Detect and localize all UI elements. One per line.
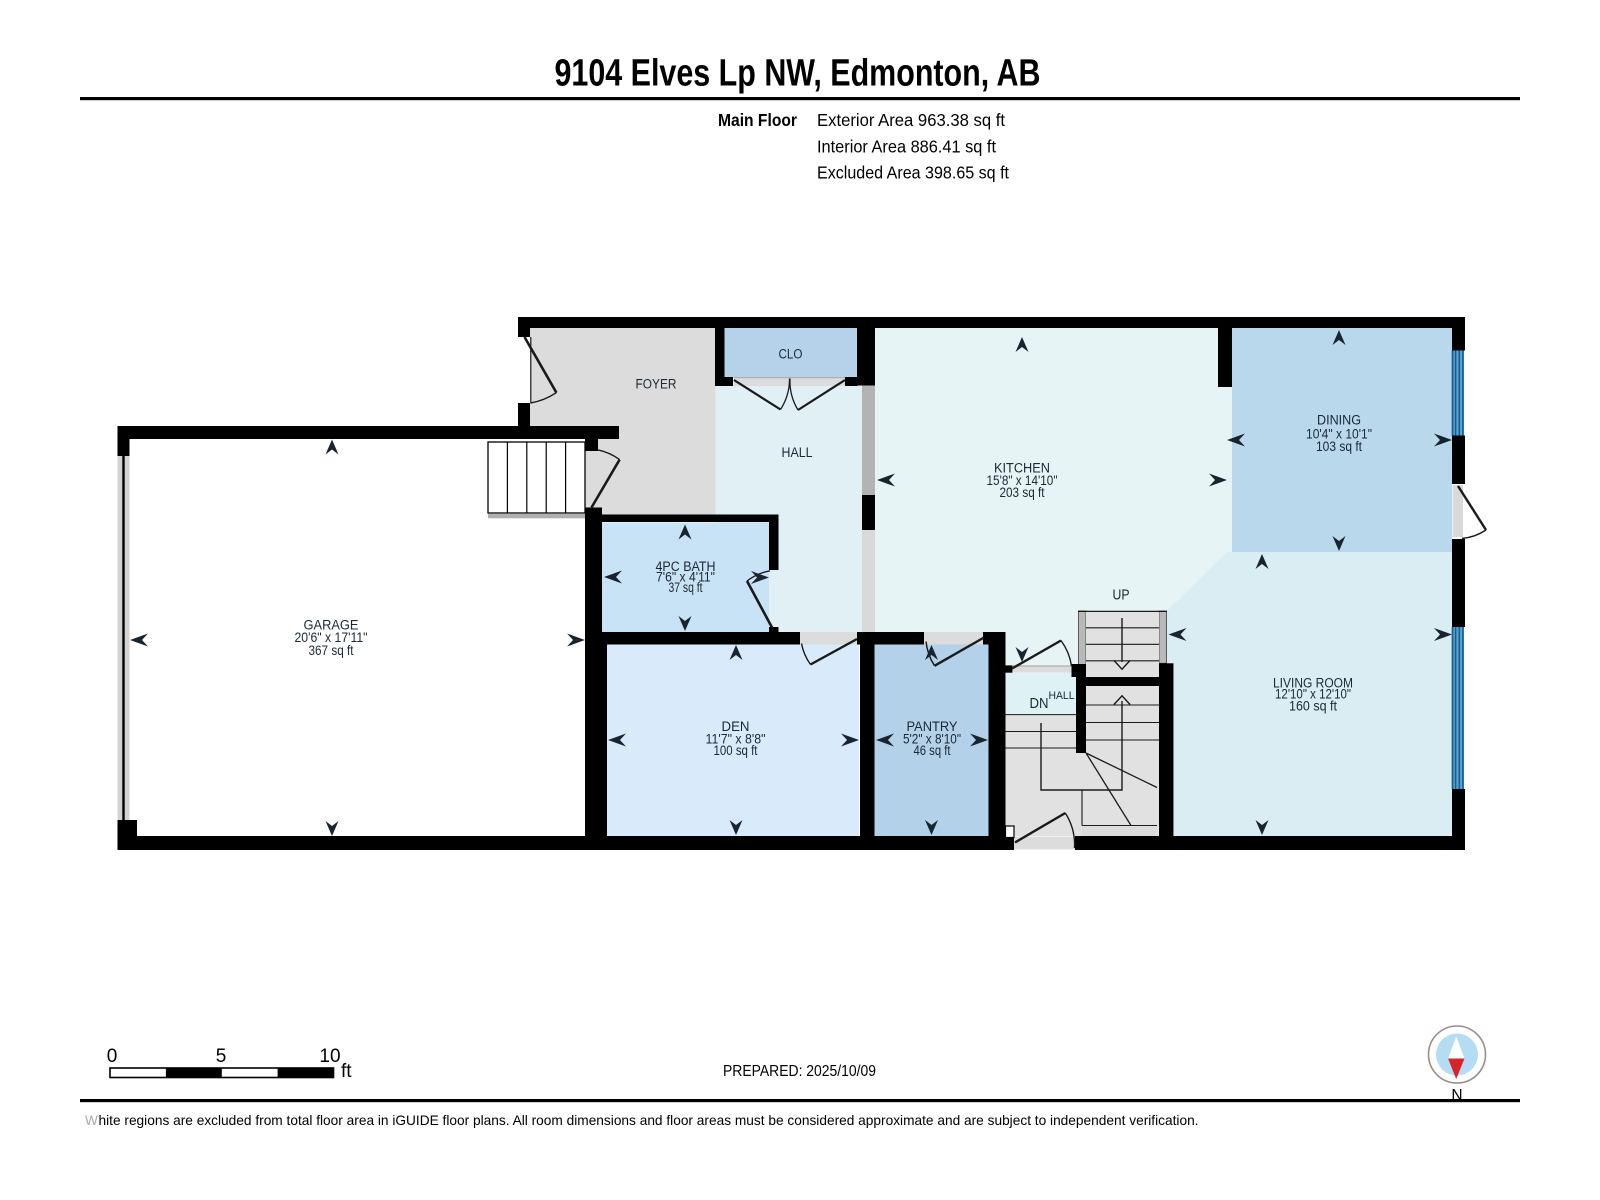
svg-text:9104 Elves Lp NW, Edmonton, AB: 9104 Elves Lp NW, Edmonton, AB xyxy=(555,53,1041,95)
svg-text:PREPARED: 2025/10/09: PREPARED: 2025/10/09 xyxy=(723,1063,876,1080)
svg-text:0: 0 xyxy=(107,1046,118,1067)
svg-text:46 sq ft: 46 sq ft xyxy=(914,743,951,758)
svg-text:HALL: HALL xyxy=(1049,690,1075,702)
svg-text:hite regions are excluded from: hite regions are excluded from total flo… xyxy=(99,1113,1199,1128)
svg-text:Exterior Area 963.38 sq ft: Exterior Area 963.38 sq ft xyxy=(817,110,1005,130)
svg-text:DINING: DINING xyxy=(1317,413,1361,428)
svg-text:10: 10 xyxy=(319,1046,340,1067)
svg-text:160 sq ft: 160 sq ft xyxy=(1289,699,1337,714)
svg-text:100 sq ft: 100 sq ft xyxy=(714,743,758,758)
svg-text:Main Floor: Main Floor xyxy=(718,110,797,130)
svg-text:5: 5 xyxy=(216,1046,227,1067)
svg-text:103 sq ft: 103 sq ft xyxy=(1316,439,1362,454)
svg-text:DN: DN xyxy=(1030,695,1049,712)
svg-text:HALL: HALL xyxy=(782,445,813,460)
svg-text:203 sq ft: 203 sq ft xyxy=(1000,485,1045,500)
svg-text:37 sq ft: 37 sq ft xyxy=(669,580,703,595)
svg-text:CLO: CLO xyxy=(779,347,803,362)
svg-text:367 sq ft: 367 sq ft xyxy=(309,643,354,658)
svg-text:FOYER: FOYER xyxy=(636,377,677,392)
svg-text:ft: ft xyxy=(341,1061,352,1082)
svg-text:Excluded Area 398.65 sq ft: Excluded Area 398.65 sq ft xyxy=(817,163,1009,183)
svg-text:W: W xyxy=(85,1113,98,1128)
svg-text:Interior Area 886.41 sq ft: Interior Area 886.41 sq ft xyxy=(817,137,996,157)
svg-text:UP: UP xyxy=(1113,587,1130,604)
